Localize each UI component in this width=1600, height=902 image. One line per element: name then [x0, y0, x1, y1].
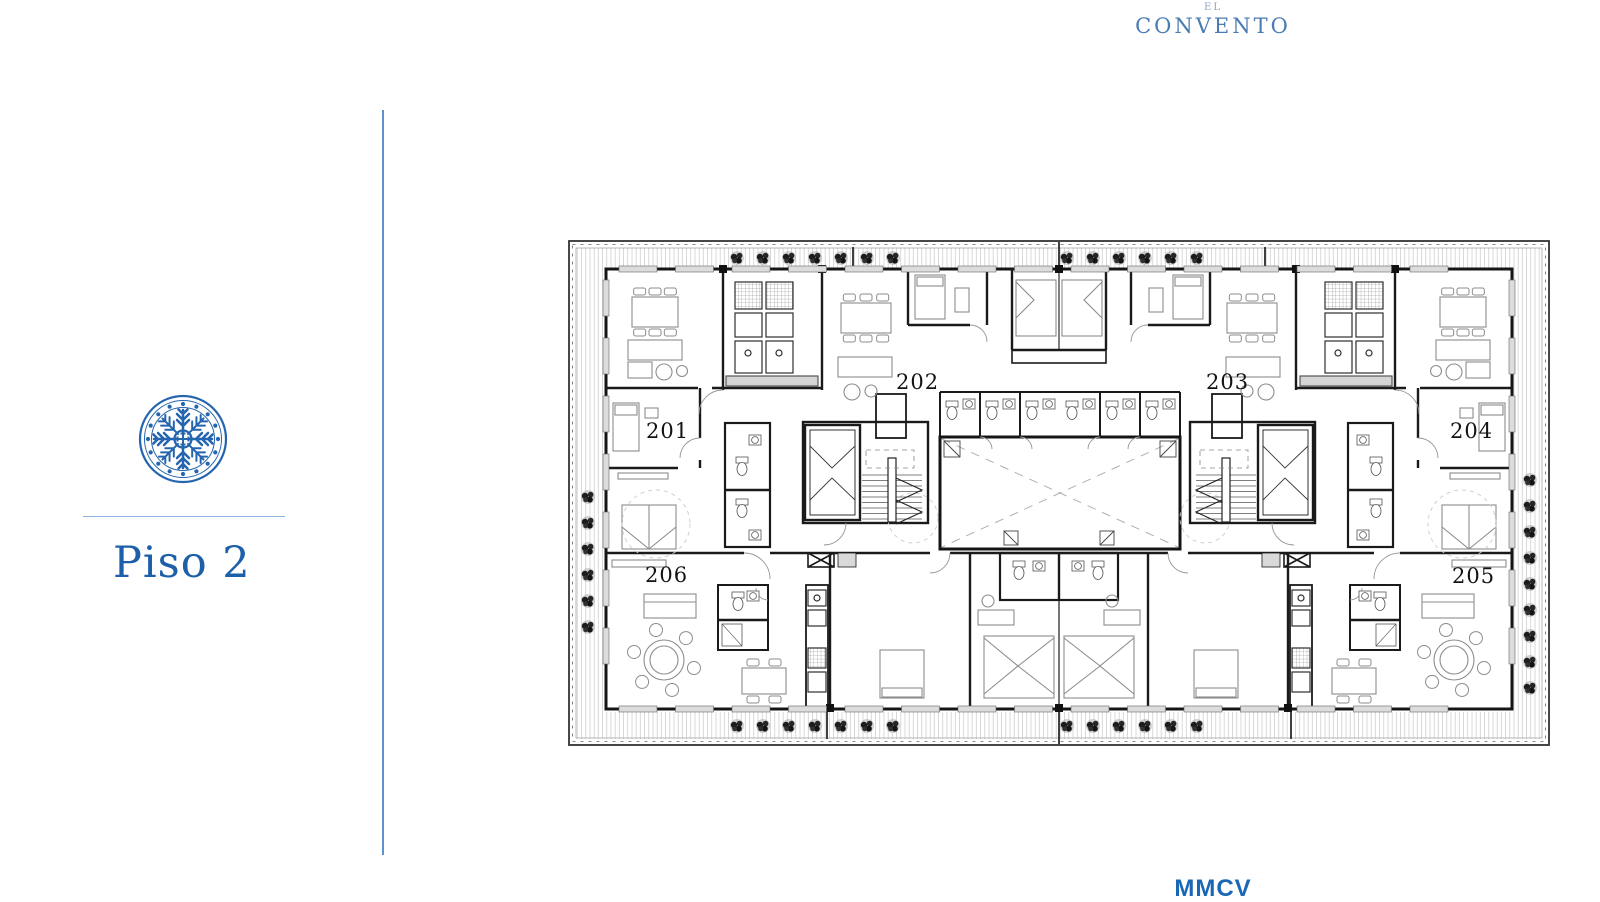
floorplan-container: 201 202 203 204 205 206	[0, 0, 1600, 898]
unit-label-204: 204	[1450, 419, 1493, 443]
floor-plan: 201 202 203 204 205 206	[0, 0, 1600, 894]
unit-label-202: 202	[896, 370, 939, 394]
footer-logo: MMCV	[1113, 877, 1313, 901]
unit-label-205: 205	[1452, 564, 1495, 588]
unit-label-201: 201	[646, 419, 689, 443]
unit-label-206: 206	[645, 563, 688, 587]
unit-label-203: 203	[1206, 370, 1249, 394]
